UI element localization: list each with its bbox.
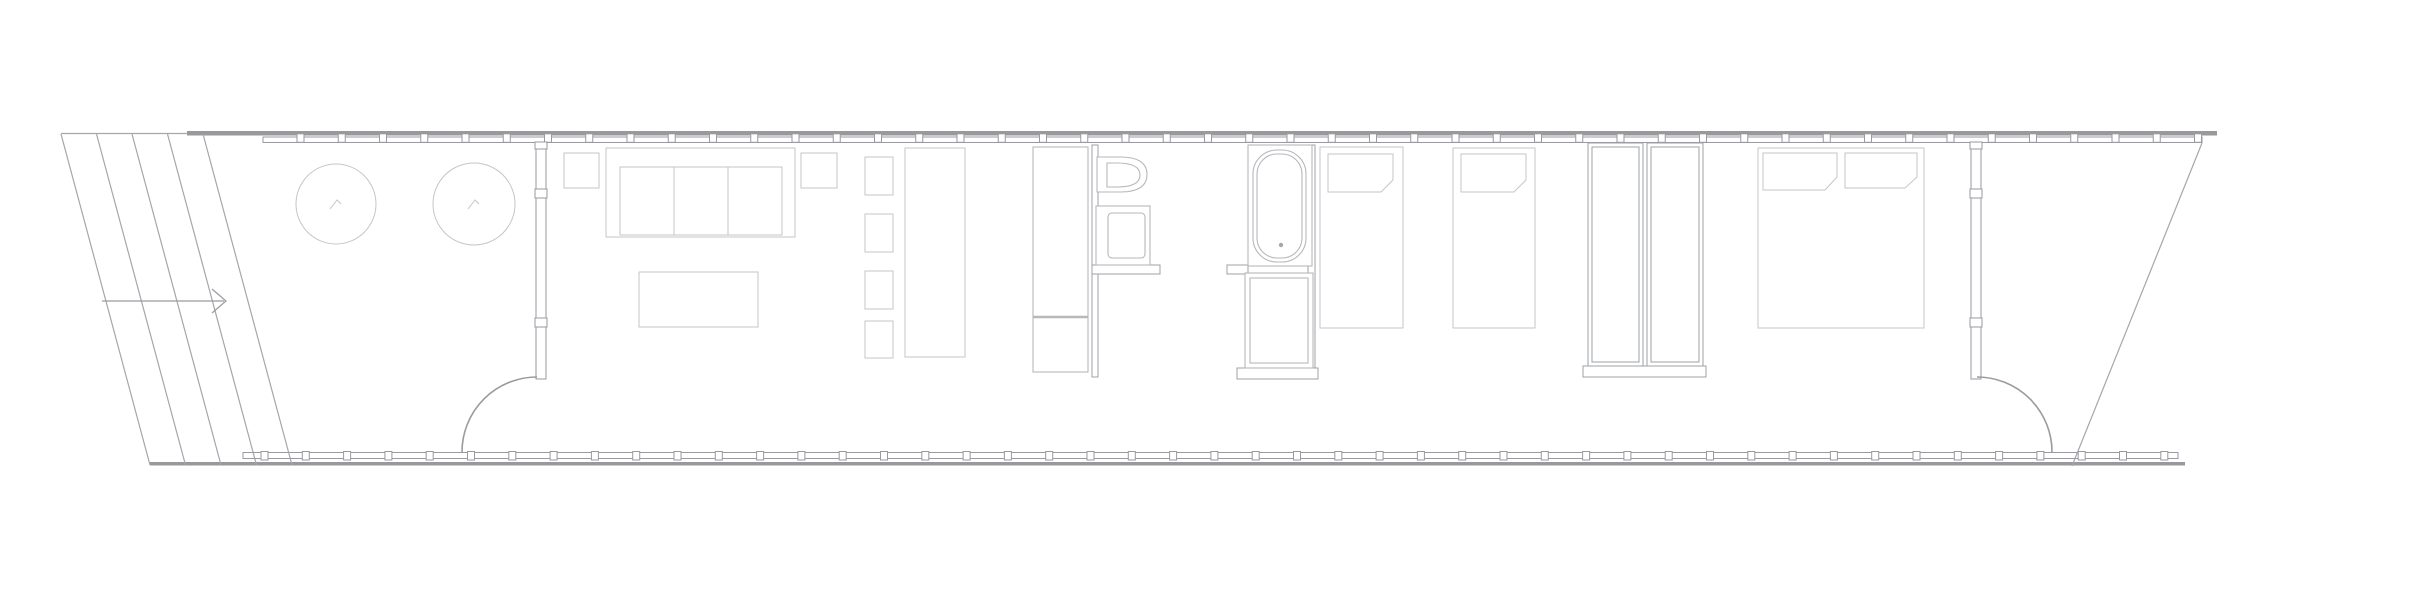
facade-mullions-top-5: [462, 134, 469, 143]
facade-mullions-bottom-12: [715, 452, 722, 461]
facade-mullions-top-46: [2153, 134, 2160, 143]
facade-mullions-top-32: [1576, 134, 1583, 143]
facade-mullions-bottom-47: [2161, 452, 2168, 461]
facade-mullions-bottom-41: [1913, 452, 1920, 461]
dining-chair-2: [865, 214, 893, 252]
facade-mullions-bottom-11: [674, 452, 681, 461]
facade-mullions-bottom-38: [1789, 452, 1796, 461]
facade-mullions-bottom-17: [922, 452, 929, 461]
facade-mullions-bottom-21: [1087, 452, 1094, 461]
facade-mullions-top-13: [792, 134, 799, 143]
facade-mullions-top-34: [1658, 134, 1665, 143]
facade-mullions-bottom-28: [1376, 452, 1383, 461]
bathroom-wall-bottom: [1237, 368, 1318, 379]
dining-chair-1: [865, 157, 893, 195]
facade-mullions-bottom-2: [302, 452, 309, 461]
facade-mullions-bottom-27: [1335, 452, 1342, 461]
floor-plan-page: [0, 0, 2409, 600]
facade-mullions-top-12: [751, 134, 758, 143]
facade-mullions-top-2: [338, 134, 345, 143]
facade-mullions-bottom-46: [2120, 452, 2127, 461]
facade-mullions-top-4: [421, 134, 428, 143]
facade-mullions-top-6: [503, 134, 510, 143]
facade-mullions-bottom-30: [1459, 452, 1466, 461]
facade-mullions-bottom-34: [1624, 452, 1631, 461]
facade-mullions-bottom-19: [1004, 452, 1011, 461]
bed-single-1: [1320, 147, 1403, 328]
facade-mullions-bottom-44: [2037, 452, 2044, 461]
facade-mullions-top-9: [627, 134, 634, 143]
fixtures: [1033, 145, 1313, 372]
facade-mullions-bottom-5: [426, 452, 433, 461]
facade-mullions-top-31: [1535, 134, 1542, 143]
facade-mullions-top-40: [1906, 134, 1913, 143]
dining-table: [905, 148, 965, 357]
entry-wall-right-mullion-3: [1970, 318, 1982, 327]
facade-mullions-top-27: [1370, 134, 1377, 143]
facade-mullions-bottom-32: [1541, 452, 1548, 461]
entry-wall-right-mullion-1: [1970, 142, 1982, 149]
sink-counter: [1096, 206, 1150, 265]
bed-single-2: [1453, 148, 1535, 328]
facade-mullions-bottom-26: [1294, 452, 1301, 461]
entry-wall-left-mullion-3: [535, 318, 547, 327]
facade-mullions-bottom-1: [261, 452, 268, 461]
facade-mullions-bottom-29: [1417, 452, 1424, 461]
facade-mullions-bottom-10: [633, 452, 640, 461]
entry-wall-right: [1971, 142, 1981, 379]
ramp-edge-1: [61, 134, 150, 465]
facade-mullions-top-45: [2112, 134, 2119, 143]
facade-mullions-bottom-40: [1872, 452, 1879, 461]
planter-tree-2-mark: [468, 200, 479, 209]
entry-wall-right-mullion-2: [1970, 189, 1982, 198]
facade-mullions-top-19: [1040, 134, 1047, 143]
facade-mullions-top-35: [1700, 134, 1707, 143]
ramp-edge-3: [132, 134, 221, 465]
side-table-2: [801, 153, 837, 188]
facade-mullions-top-20: [1081, 134, 1088, 143]
facade-mullions-bottom-24: [1211, 452, 1218, 461]
facade-mullions-top-8: [586, 134, 593, 143]
deck-edge-bottom: [150, 462, 2185, 466]
entry-wall-left: [536, 142, 546, 379]
facade-mullions-bottom-45: [2078, 452, 2085, 461]
facade-mullions-top-26: [1328, 134, 1335, 143]
facade-mullions-top-23: [1205, 134, 1212, 143]
facade-mullions-top-38: [1823, 134, 1830, 143]
wardrobe-base: [1583, 366, 1706, 377]
facade-mullions-bottom-31: [1500, 452, 1507, 461]
entry-wall-left-mullion-2: [535, 189, 547, 198]
facade-mullions-bottom-33: [1583, 452, 1590, 461]
deck-edge-right-diagonal: [2072, 143, 2202, 466]
wardrobe-1: [1588, 143, 1643, 366]
facade-mullions-bottom-13: [757, 452, 764, 461]
annotations: [102, 289, 226, 313]
entry-door-right-swing: [1977, 377, 2052, 452]
bathroom-halfwall-left: [1092, 265, 1160, 274]
facade-mullions-top-41: [1947, 134, 1954, 143]
facade-mullions-top-7: [545, 134, 552, 143]
facade-mullions-bottom-18: [963, 452, 970, 461]
facade-mullions-bottom-16: [881, 452, 888, 461]
facade-mullions-bottom-39: [1830, 452, 1837, 461]
facade-mullions-top-42: [1988, 134, 1995, 143]
facade-mullions-top-33: [1617, 134, 1624, 143]
bathtub-drain: [1279, 243, 1283, 247]
entry-wall-left-mullion-1: [535, 142, 547, 149]
facade-mullions-bottom-9: [591, 452, 598, 461]
facade-mullions-bottom-4: [385, 452, 392, 461]
ramp-edge-2: [97, 134, 186, 465]
facade-mullions-top-15: [875, 134, 882, 143]
floor-plan: [0, 0, 2409, 600]
facade-mullions-bottom-25: [1252, 452, 1259, 461]
sofa: [606, 148, 795, 237]
facade-mullions-bottom-8: [550, 452, 557, 461]
facade-mullions-bottom-14: [798, 452, 805, 461]
facade-mullions-top-17: [957, 134, 964, 143]
side-table-1: [564, 153, 599, 188]
facade-mullions-bottom-23: [1170, 452, 1177, 461]
facade-mullions-bottom-3: [344, 452, 351, 461]
facade-mullions-bottom-15: [839, 452, 846, 461]
facade-mullions-top-18: [998, 134, 1005, 143]
facade-mullions-top-1: [297, 134, 304, 143]
facade-mullions-top-28: [1411, 134, 1418, 143]
facade-mullions-bottom-36: [1707, 452, 1714, 461]
facade-mullions-top-36: [1741, 134, 1748, 143]
facade-mullions-top-37: [1782, 134, 1789, 143]
facade-mullions-top-24: [1246, 134, 1253, 143]
facade-mullions-bottom-35: [1665, 452, 1672, 461]
facade-mullions-top-39: [1865, 134, 1872, 143]
facade-mullions-top-25: [1287, 134, 1294, 143]
facade-mullions-top-47: [2195, 134, 2202, 143]
facade-mullions-bottom-6: [468, 452, 475, 461]
coffee-table: [639, 272, 758, 327]
wardrobe-2: [1647, 143, 1703, 366]
facade-mullions-top-30: [1493, 134, 1500, 143]
facade-mullions-bottom-7: [509, 452, 516, 461]
facade-mullions-bottom-37: [1748, 452, 1755, 461]
facade-mullions-bottom-43: [1996, 452, 2003, 461]
facade-mullions-top-21: [1122, 134, 1129, 143]
kitchen-unit: [1033, 147, 1088, 372]
facade-mullions-top-11: [710, 134, 717, 143]
facade-mullions-bottom-22: [1128, 452, 1135, 461]
planter-tree-2: [433, 163, 515, 245]
facade-mullions-bottom-42: [1954, 452, 1961, 461]
facade-mullions-top-10: [668, 134, 675, 143]
shower: [1245, 273, 1313, 368]
facade-mullions-top-3: [380, 134, 387, 143]
ramp-edge-5: [203, 134, 292, 465]
facade-mullions-top-22: [1163, 134, 1170, 143]
planter-tree-1-mark: [330, 200, 341, 209]
facade-mullions-top-16: [916, 134, 923, 143]
facade-mullions-top-14: [833, 134, 840, 143]
facade-mullions-top-44: [2071, 134, 2078, 143]
facade-mullions-top-43: [2030, 134, 2037, 143]
entry-door-left-swing: [462, 377, 537, 452]
bed-double: [1758, 148, 1924, 328]
facade-mullions-top-29: [1452, 134, 1459, 143]
facade-mullions-bottom-20: [1046, 452, 1053, 461]
ramp-edge-4: [168, 134, 257, 465]
planter-tree-1: [296, 164, 376, 244]
dining-chair-3: [865, 271, 893, 309]
dining-chair-4: [865, 321, 893, 358]
